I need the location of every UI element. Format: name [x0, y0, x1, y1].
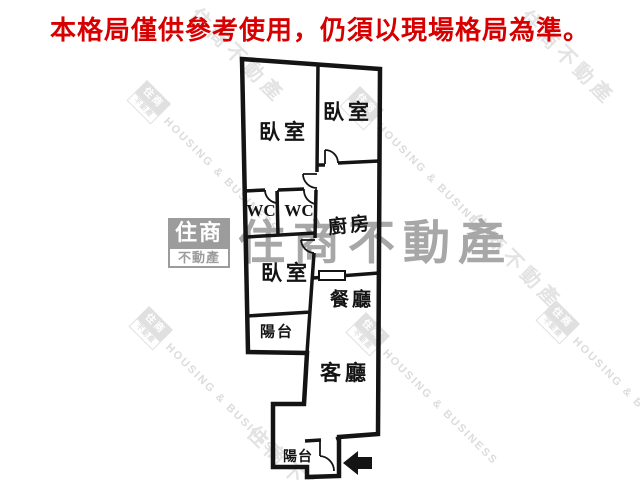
floor-plan-drawing [0, 0, 640, 480]
outer-walls [242, 59, 380, 477]
disclaimer-text: 本格局僅供參考使用，仍須以現場格局為準。 [0, 10, 640, 47]
window-symbol [319, 271, 345, 280]
entrance-arrow-icon [343, 451, 372, 475]
floor-plan-page: 住商不動產 HOUSING & BUSINESS 住商不動產 HOUSING &… [0, 0, 640, 480]
